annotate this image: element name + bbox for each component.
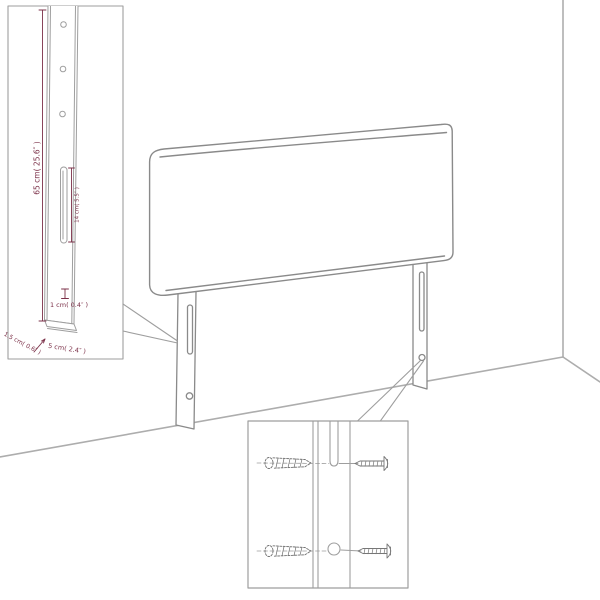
screw-detail-callout bbox=[248, 361, 424, 588]
headboard-diagram-art bbox=[0, 0, 600, 600]
headboard-panel bbox=[150, 124, 453, 295]
hole-offset-dimension-label: 1 cm( 0.4″ ) bbox=[50, 302, 88, 309]
floor-line-right bbox=[563, 357, 600, 382]
screw-detail-callout-box bbox=[248, 421, 408, 588]
leg-detail-drawing bbox=[45, 6, 79, 333]
leg-height-dimension-label: 65 cm( 25.6″ ) bbox=[33, 141, 41, 194]
left-leg bbox=[176, 292, 196, 429]
right-leg bbox=[413, 261, 427, 389]
headboard-panel-outline bbox=[150, 124, 453, 295]
diagram-canvas: 65 cm( 25.6″ ) 14 cm( 5.5″ ) 1 cm( 0.4″ … bbox=[0, 0, 600, 600]
leg-detail-leader-lines bbox=[123, 304, 178, 343]
slot-length-dimension-label: 14 cm( 5.5″ ) bbox=[75, 187, 81, 223]
